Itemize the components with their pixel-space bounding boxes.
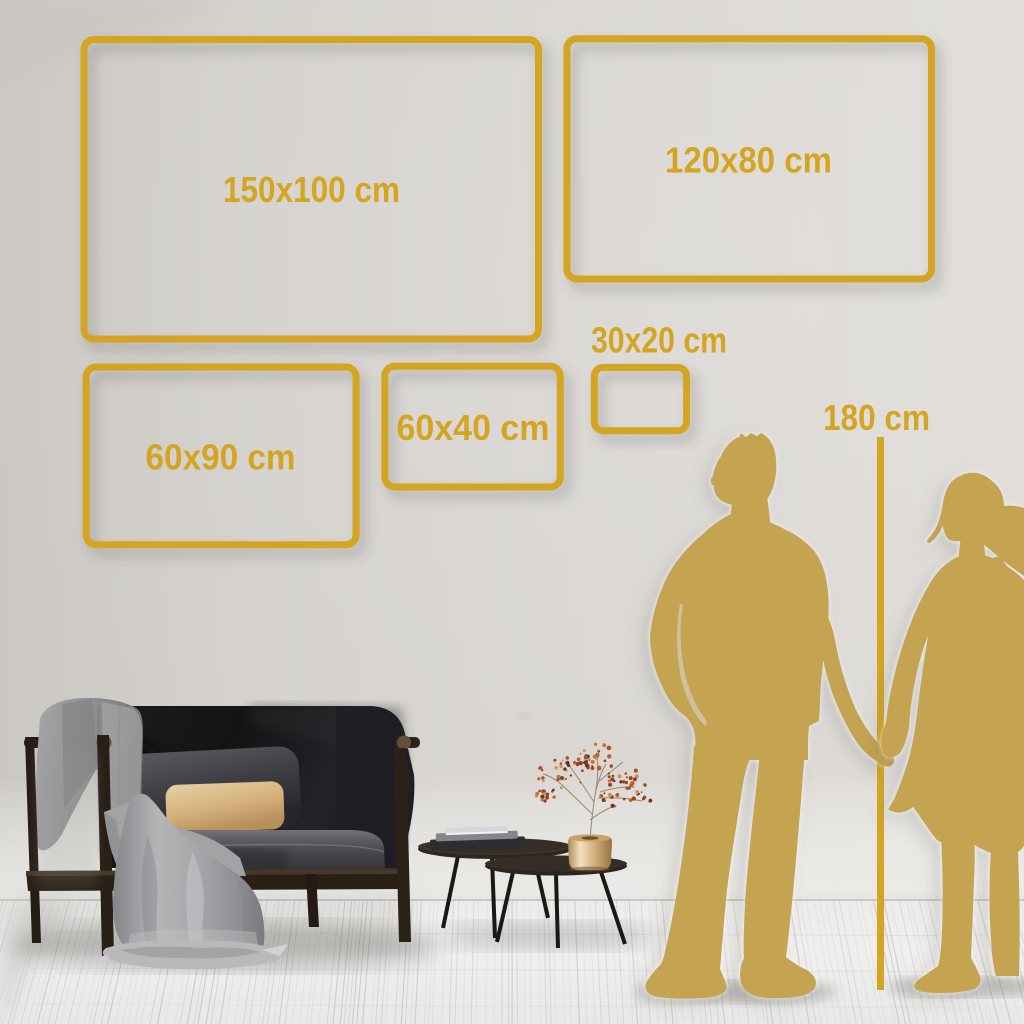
svg-text:60x90 cm: 60x90 cm: [146, 437, 296, 478]
svg-text:120x80 cm: 120x80 cm: [665, 140, 832, 181]
svg-text:30x20 cm: 30x20 cm: [591, 320, 727, 361]
svg-text:60x40 cm: 60x40 cm: [397, 407, 550, 448]
svg-text:180 cm: 180 cm: [823, 397, 930, 438]
svg-text:150x100 cm: 150x100 cm: [223, 169, 400, 210]
